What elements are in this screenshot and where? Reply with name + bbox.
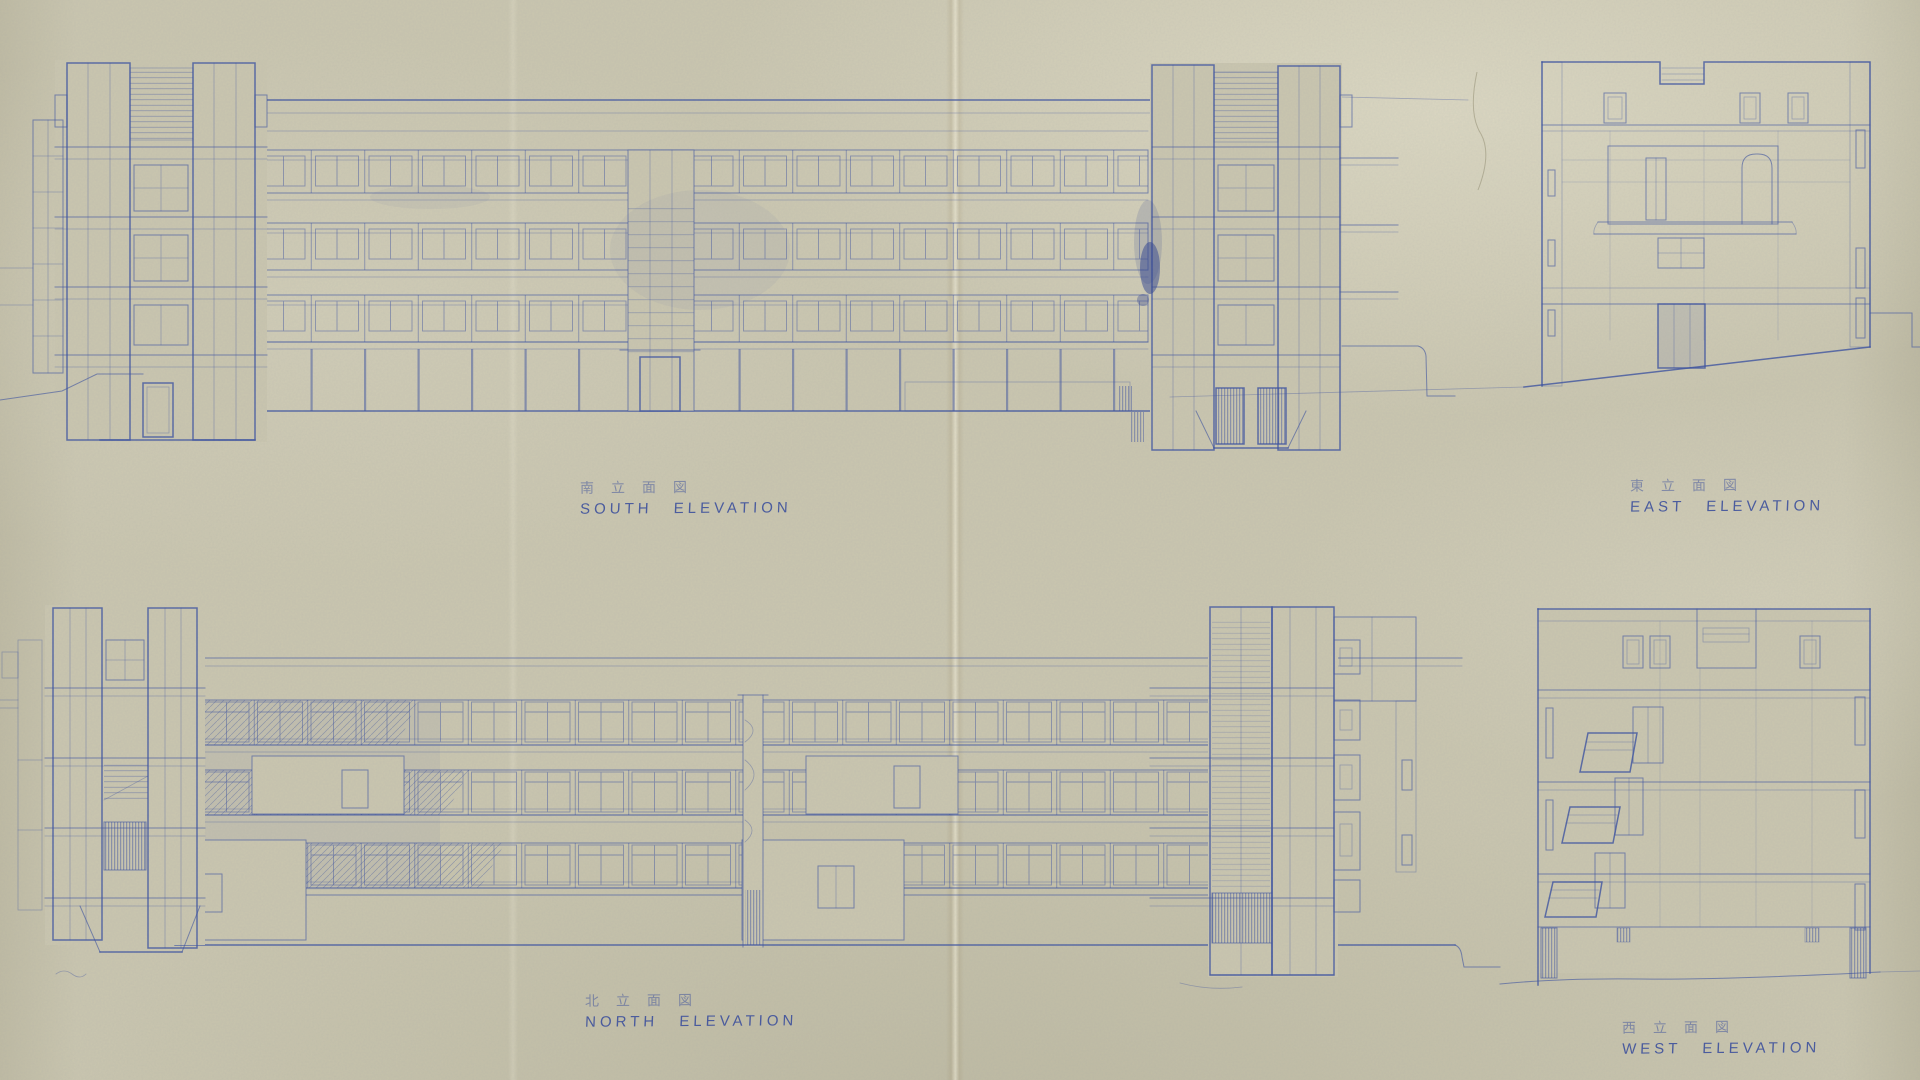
north-center-stair-pipe [738, 695, 768, 947]
south-right-stair-tower [1134, 63, 1352, 450]
north-elevation-label: 北立面図 NORTH ELEVATION [585, 989, 797, 1030]
east-elevation-label-en: EAST ELEVATION [1630, 497, 1825, 515]
west-elevation-label: 西立面図 WEST ELEVATION [1622, 1016, 1820, 1057]
north-elevation-label-en: NORTH ELEVATION [585, 1012, 798, 1030]
east-elevation-label: 東立面図 EAST ELEVATION [1630, 474, 1824, 515]
east-roof-windows [1604, 93, 1808, 123]
south-right-ground [1340, 158, 1455, 396]
blueprint-sheet: 南立面図 SOUTH ELEVATION 東立面図 EAST ELEVATION… [0, 0, 1920, 1080]
south-elevation-label-jp: 南立面図 [580, 476, 792, 497]
north-left-annex [0, 640, 42, 910]
north-left-stair-tower [45, 605, 205, 977]
west-elevation-drawing [1500, 609, 1920, 985]
west-elevation-label-jp: 西立面図 [1622, 1016, 1820, 1037]
east-middle-volume [1562, 146, 1850, 234]
south-pilotis [240, 349, 1160, 442]
south-elevation-drawing [0, 60, 1468, 450]
east-elevation-label-jp: 東立面図 [1630, 474, 1824, 495]
south-elevation-label: 南立面図 SOUTH ELEVATION [580, 476, 792, 517]
north-right-annex [1334, 617, 1416, 872]
south-left-stair-tower [55, 60, 267, 442]
south-elevation-label-en: SOUTH ELEVATION [580, 499, 792, 517]
north-elevation-drawing [0, 605, 1500, 988]
north-elevation-label-jp: 北立面図 [585, 989, 797, 1010]
elevation-drawings [0, 0, 1920, 1080]
west-elevation-label-en: WEST ELEVATION [1622, 1039, 1821, 1057]
